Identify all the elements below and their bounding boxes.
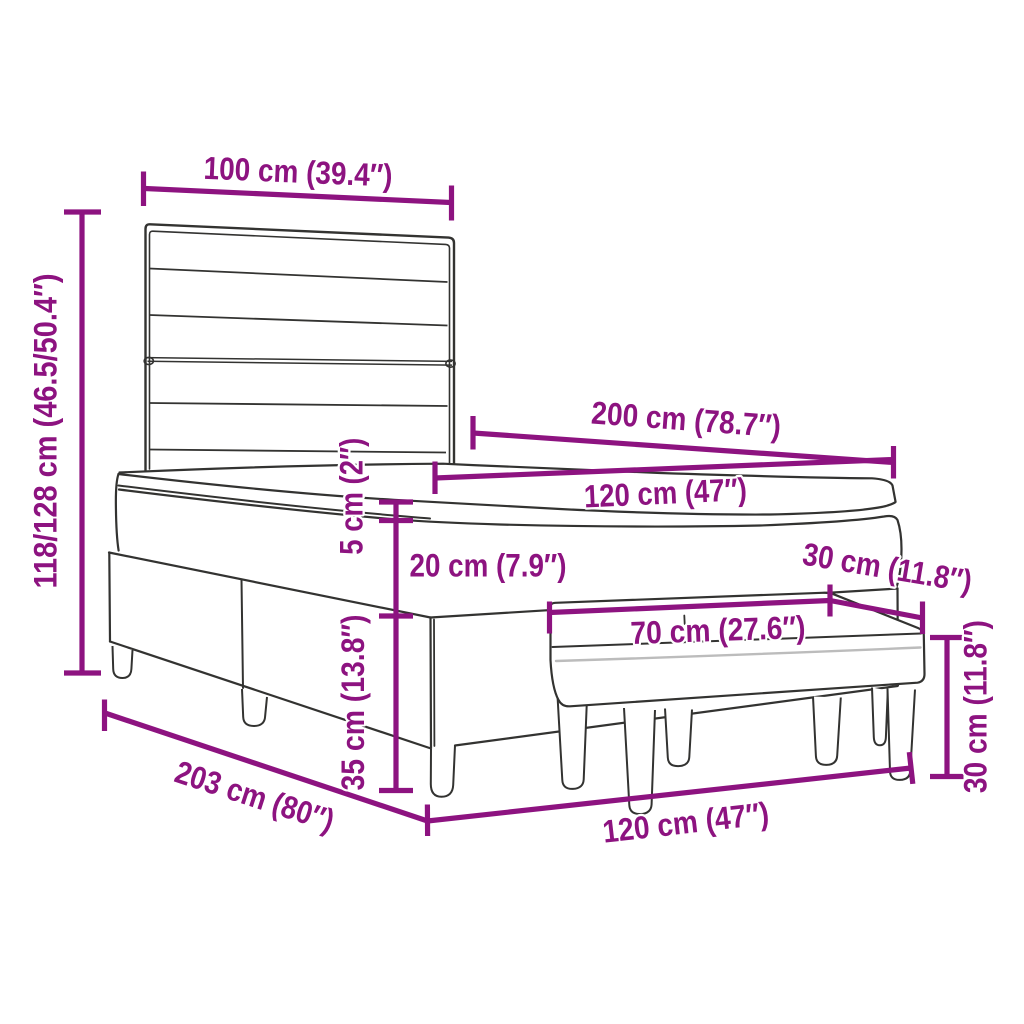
svg-text:5 cm (2″): 5 cm (2″) — [333, 438, 369, 555]
svg-text:118/128 cm (46.5/50.4″): 118/128 cm (46.5/50.4″) — [27, 274, 63, 589]
svg-text:35 cm (13.8″): 35 cm (13.8″) — [335, 615, 371, 791]
svg-text:70 cm (27.6″): 70 cm (27.6″) — [630, 609, 806, 651]
svg-text:20 cm (7.9″): 20 cm (7.9″) — [410, 547, 567, 583]
svg-text:30 cm (11.8″): 30 cm (11.8″) — [957, 620, 993, 793]
svg-text:120 cm (47″): 120 cm (47″) — [583, 471, 747, 514]
